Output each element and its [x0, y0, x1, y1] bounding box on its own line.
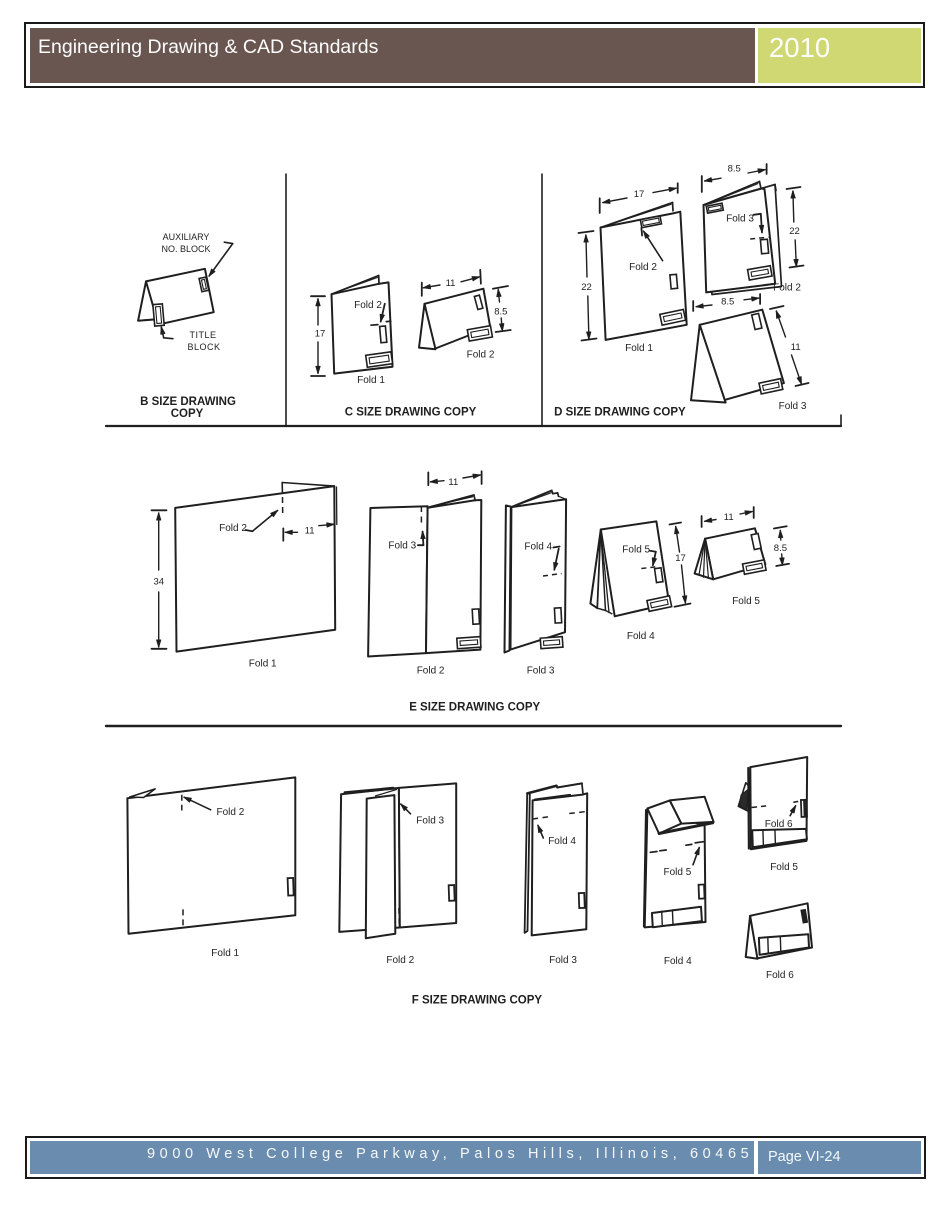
svg-text:Fold 1: Fold 1: [249, 659, 277, 670]
svg-text:Fold 3: Fold 3: [416, 816, 444, 827]
svg-text:COPY: COPY: [171, 408, 204, 420]
svg-text:Fold 5: Fold 5: [732, 596, 760, 607]
svg-text:BLOCK: BLOCK: [187, 342, 220, 352]
svg-text:AUXILIARY: AUXILIARY: [163, 232, 210, 242]
svg-text:8.5: 8.5: [494, 307, 507, 318]
svg-text:Fold 6: Fold 6: [766, 970, 794, 981]
svg-text:Fold 2: Fold 2: [773, 283, 801, 294]
svg-text:B SIZE DRAWING: B SIZE DRAWING: [140, 396, 236, 408]
svg-text:22: 22: [581, 282, 592, 293]
svg-text:17: 17: [634, 189, 645, 200]
svg-text:D SIZE DRAWING COPY: D SIZE DRAWING COPY: [554, 407, 686, 419]
svg-text:8.5: 8.5: [774, 543, 787, 554]
svg-text:Fold 2: Fold 2: [417, 666, 445, 677]
svg-text:C SIZE DRAWING COPY: C SIZE DRAWING COPY: [345, 407, 477, 419]
svg-text:11: 11: [448, 477, 458, 488]
svg-text:Fold 4: Fold 4: [664, 956, 692, 967]
svg-text:Fold 3: Fold 3: [527, 666, 555, 677]
svg-text:Fold 3: Fold 3: [549, 955, 577, 966]
svg-text:Fold 2: Fold 2: [354, 300, 382, 311]
svg-text:17: 17: [315, 329, 326, 340]
svg-text:Fold 4: Fold 4: [548, 836, 576, 847]
svg-text:22: 22: [789, 226, 800, 237]
svg-text:Fold 4: Fold 4: [524, 542, 552, 553]
svg-text:NO. BLOCK: NO. BLOCK: [161, 244, 210, 254]
svg-text:TITLE: TITLE: [189, 330, 216, 340]
svg-text:Fold 5: Fold 5: [770, 862, 798, 873]
svg-text:Fold 1: Fold 1: [357, 375, 385, 386]
svg-text:11: 11: [446, 278, 456, 289]
svg-text:17: 17: [675, 553, 686, 564]
svg-text:Fold 2: Fold 2: [219, 523, 247, 534]
svg-text:E SIZE DRAWING COPY: E SIZE DRAWING COPY: [409, 702, 540, 714]
svg-text:34: 34: [154, 577, 165, 588]
svg-text:Fold 2: Fold 2: [217, 807, 245, 818]
svg-text:11: 11: [724, 512, 734, 523]
svg-text:Fold 1: Fold 1: [211, 948, 239, 959]
svg-text:Fold 5: Fold 5: [622, 545, 650, 556]
svg-text:Fold 2: Fold 2: [386, 955, 414, 966]
svg-text:Fold 2: Fold 2: [467, 350, 495, 361]
svg-text:Fold 3: Fold 3: [388, 541, 416, 552]
svg-text:Fold 3: Fold 3: [779, 401, 807, 412]
svg-text:Fold 5: Fold 5: [664, 867, 692, 878]
svg-text:8.5: 8.5: [721, 297, 734, 308]
svg-text:8.5: 8.5: [728, 164, 741, 175]
svg-text:Fold 2: Fold 2: [629, 262, 657, 273]
svg-text:Fold 4: Fold 4: [627, 631, 655, 642]
svg-text:F SIZE DRAWING COPY: F SIZE DRAWING COPY: [412, 994, 543, 1006]
svg-text:11: 11: [305, 526, 315, 537]
svg-text:Fold 3: Fold 3: [726, 214, 754, 225]
svg-text:11: 11: [791, 342, 801, 353]
svg-text:Fold 1: Fold 1: [625, 343, 653, 354]
